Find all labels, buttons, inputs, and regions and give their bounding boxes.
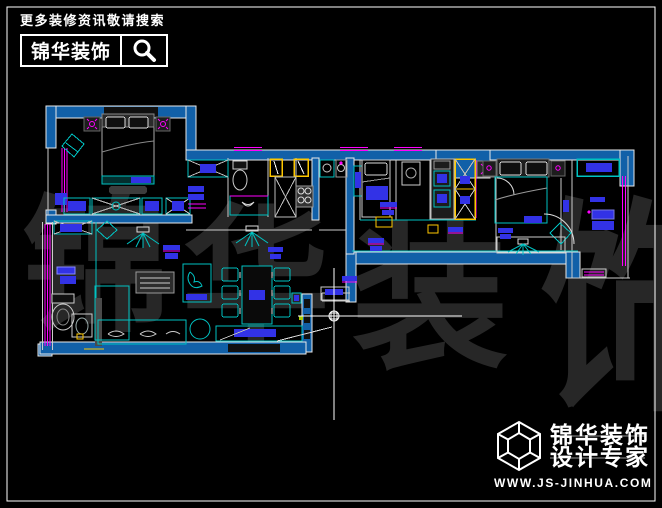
- living-room: [95, 226, 332, 344]
- balcony: [577, 159, 619, 277]
- door-frame-icon: [428, 225, 438, 233]
- brand-name: 锦华装饰: [22, 36, 122, 65]
- armchair-icon: [62, 134, 84, 157]
- side-table-icon: [190, 319, 210, 339]
- cad-crosshair-cursor[interactable]: [298, 268, 462, 420]
- website-url: WWW.JS-JINHUA.COM: [494, 476, 653, 490]
- room-label-mark: [448, 227, 463, 233]
- pillow-icon: [526, 162, 547, 175]
- room-label-mark: [368, 238, 384, 251]
- room-label-mark: [268, 247, 283, 259]
- nightstand-icon: [483, 161, 496, 176]
- toilet-tank-icon: [233, 161, 247, 169]
- search-tagline: 更多装修资讯敬请搜索: [20, 10, 168, 29]
- door-frame-icon: [376, 217, 392, 227]
- logo-line1: 锦华装饰: [550, 424, 650, 446]
- footer-logo: 锦华装饰 设计专家 WWW.JS-JINHUA.COM: [494, 420, 653, 490]
- logo-line2: 设计专家: [550, 446, 650, 468]
- room-label-mark: [163, 245, 180, 259]
- room-label-mark: [590, 197, 605, 202]
- tv-icon: [234, 329, 276, 337]
- bedroom2: [483, 159, 574, 255]
- room-label-mark: [380, 202, 397, 215]
- washing-machine-icon: [402, 162, 420, 185]
- toilet-icon: [52, 304, 74, 330]
- logo-text: 锦华装饰 设计专家: [550, 424, 650, 468]
- pillow-icon: [106, 117, 125, 128]
- shower-shaft-area: [270, 159, 313, 217]
- sink-icon: [320, 160, 334, 177]
- kitchen: [320, 160, 347, 177]
- study-strip: [54, 221, 117, 284]
- sofa-cushions: [108, 331, 180, 337]
- header-branding: 更多装修资讯敬请搜索 锦华装饰: [20, 10, 168, 67]
- nightstand-icon: [551, 161, 565, 176]
- ceiling-fan-icon: [236, 226, 268, 247]
- pillow-icon: [365, 163, 387, 175]
- pillow-icon: [500, 162, 521, 175]
- search-icon[interactable]: [122, 36, 166, 65]
- kitchen-counter-column: [431, 159, 454, 219]
- door-swing: [497, 178, 514, 195]
- toilet-tank-icon: [52, 294, 74, 303]
- pillow-icon: [129, 117, 148, 128]
- toilet-icon: [233, 170, 247, 190]
- chair-icon: [97, 221, 117, 239]
- bedroom1: [55, 114, 190, 214]
- screenshot-canvas: 锦 华 装 饰: [0, 0, 662, 508]
- room-label-mark: [498, 228, 513, 239]
- nightstand-icon: [84, 117, 100, 131]
- wireframe-cube-icon: [494, 420, 544, 472]
- room-labels: [163, 197, 605, 300]
- bed-bench-icon: [109, 186, 147, 194]
- door-swing: [544, 214, 574, 244]
- plant-icon: [188, 272, 202, 288]
- dining-area: [183, 264, 290, 324]
- furniture-fill: [57, 267, 75, 274]
- brand-search-box[interactable]: 锦华装饰: [20, 34, 168, 67]
- ceiling-light-icon: [127, 227, 159, 248]
